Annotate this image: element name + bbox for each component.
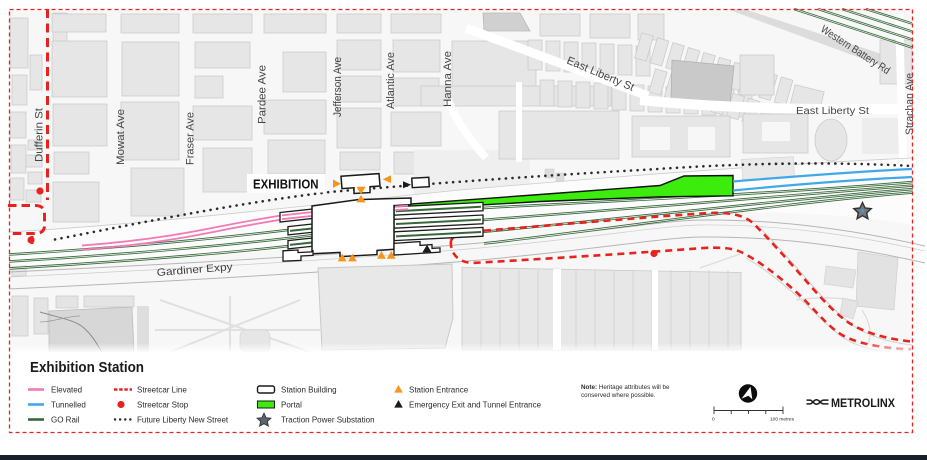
svg-text:Note: Heritage attributes will: Note: Heritage attributes will be (581, 384, 670, 391)
svg-text:Fraser Ave: Fraser Ave (185, 112, 197, 165)
svg-text:Tunnelled: Tunnelled (51, 401, 86, 410)
svg-text:METROLINX: METROLINX (831, 398, 895, 410)
svg-text:Station Entrance: Station Entrance (409, 386, 469, 395)
svg-text:Traction Power Substation: Traction Power Substation (281, 416, 375, 425)
svg-text:Future Liberty New Street: Future Liberty New Street (137, 416, 229, 425)
svg-text:East Liberty St: East Liberty St (796, 106, 869, 117)
svg-text:Elevated: Elevated (51, 386, 82, 395)
svg-text:EXHIBITION: EXHIBITION (253, 176, 319, 191)
svg-text:Atlantic Ave: Atlantic Ave (385, 52, 397, 109)
svg-text:Hanna Ave: Hanna Ave (442, 51, 454, 107)
svg-text:Strachan Ave: Strachan Ave (904, 73, 916, 135)
svg-text:Dufferin St: Dufferin St (34, 108, 46, 162)
svg-text:100 metres: 100 metres (770, 417, 795, 423)
svg-text:GO Rail: GO Rail (51, 416, 80, 425)
svg-text:Exhibition Station: Exhibition Station (30, 360, 144, 376)
svg-text:0: 0 (712, 417, 715, 423)
svg-text:Station Building: Station Building (281, 386, 337, 395)
svg-text:Emergency Exit and Tunnel Entr: Emergency Exit and Tunnel Entrance (409, 401, 542, 410)
svg-text:Pardee Ave: Pardee Ave (257, 65, 269, 124)
svg-text:Portal: Portal (281, 401, 302, 410)
svg-text:conserved where possible.: conserved where possible. (581, 392, 656, 399)
svg-text:Jefferson Ave: Jefferson Ave (332, 57, 344, 117)
svg-text:Streetcar Stop: Streetcar Stop (137, 401, 189, 410)
svg-text:Mowat Ave: Mowat Ave (115, 109, 127, 165)
svg-text:Streetcar Line: Streetcar Line (137, 386, 187, 395)
